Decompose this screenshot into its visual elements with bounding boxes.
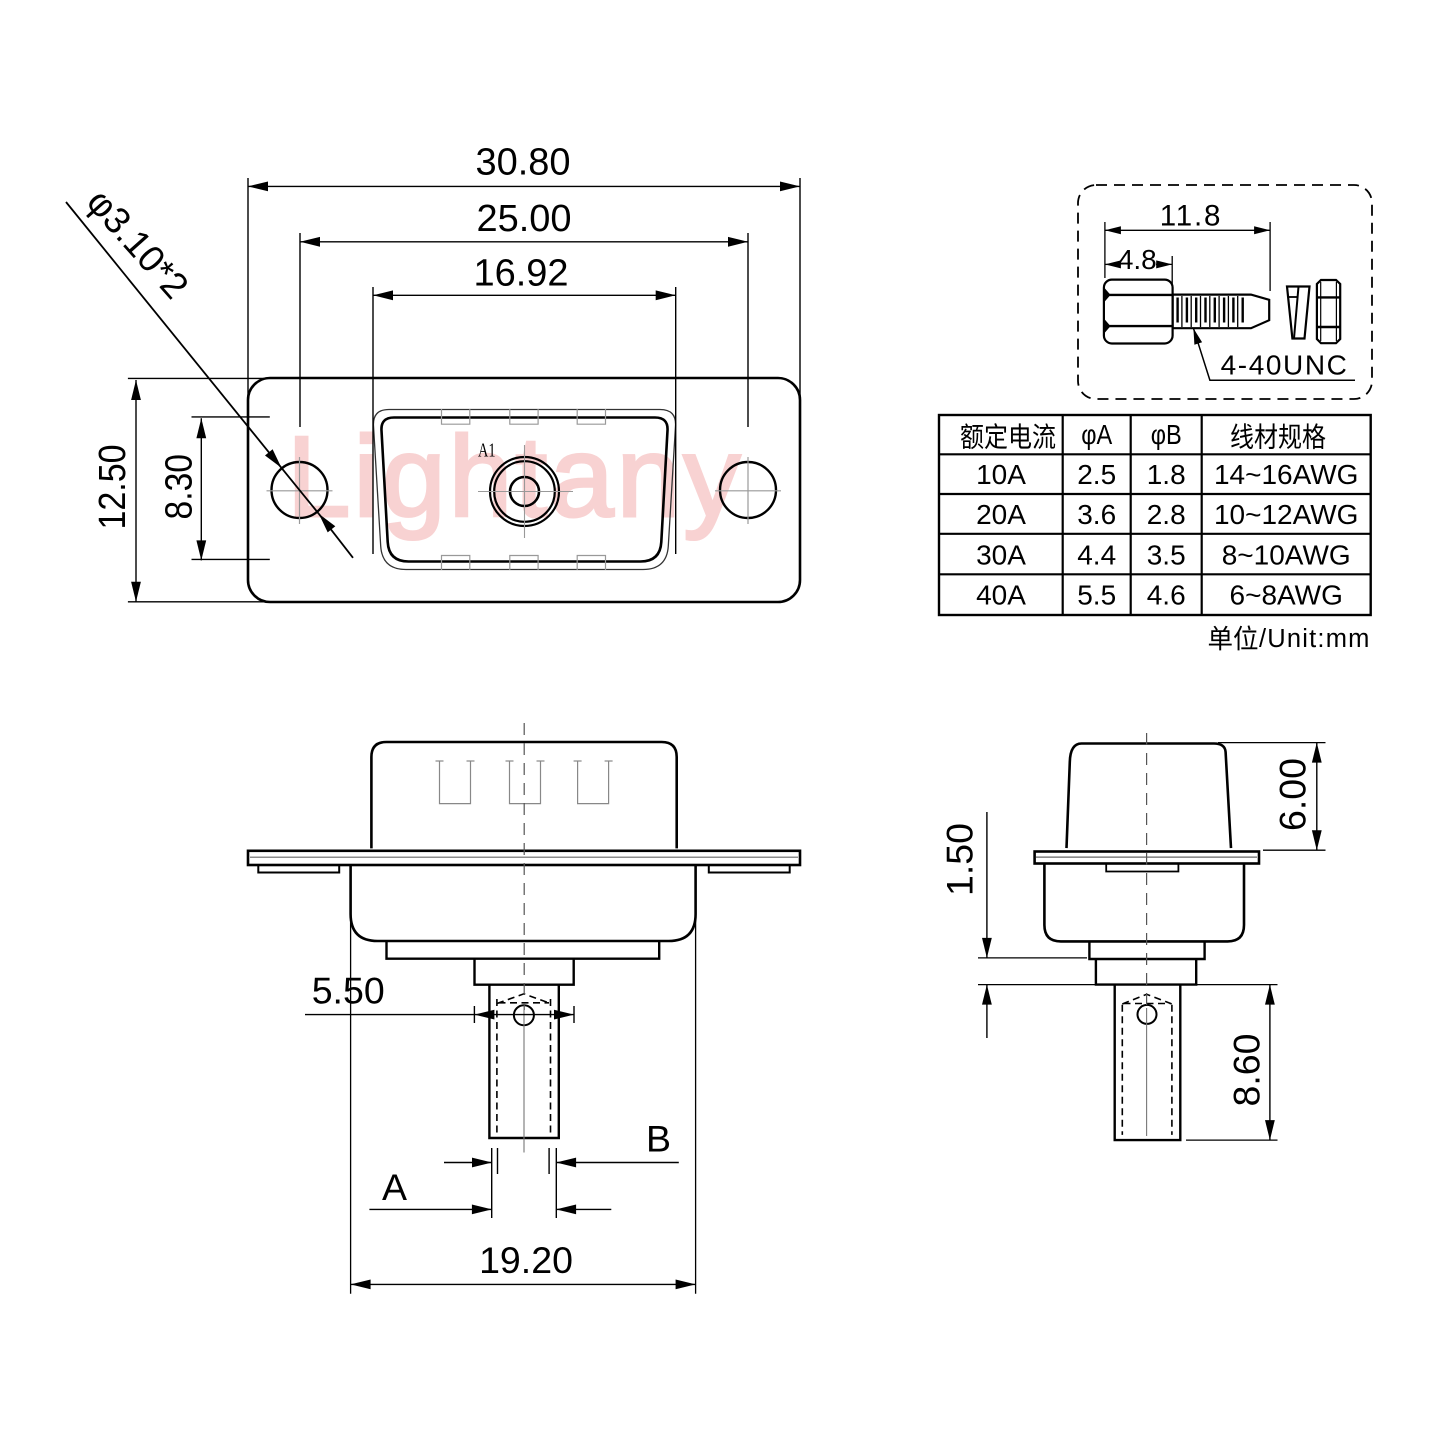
svg-text:12.50: 12.50: [92, 445, 134, 530]
svg-text:11.8: 11.8: [1160, 200, 1222, 233]
svg-text:5.50: 5.50: [312, 969, 385, 1011]
svg-text:2.5: 2.5: [1077, 459, 1116, 490]
svg-text:1.50: 1.50: [939, 823, 981, 896]
svg-text:6.00: 6.00: [1272, 758, 1314, 831]
svg-text:1.8: 1.8: [1147, 459, 1186, 490]
svg-text:/Unit:mm: /Unit:mm: [1259, 625, 1371, 653]
svg-text:40A: 40A: [976, 580, 1026, 611]
svg-text:8~10AWG: 8~10AWG: [1222, 539, 1351, 570]
svg-text:10~12AWG: 10~12AWG: [1214, 499, 1358, 530]
svg-text:25.00: 25.00: [476, 198, 571, 240]
svg-text:3.5: 3.5: [1147, 539, 1186, 570]
svg-text:16.92: 16.92: [473, 252, 568, 294]
svg-text:φA: φA: [1081, 419, 1112, 450]
svg-text:A: A: [382, 1166, 407, 1208]
svg-text:4.6: 4.6: [1147, 580, 1186, 611]
svg-text:8.30: 8.30: [159, 454, 201, 520]
svg-text:10A: 10A: [976, 459, 1026, 490]
svg-text:14~16AWG: 14~16AWG: [1214, 459, 1358, 490]
svg-text:φB: φB: [1151, 419, 1182, 450]
svg-text:3.6: 3.6: [1077, 499, 1116, 530]
svg-text:B: B: [646, 1117, 671, 1159]
svg-text:A1: A1: [478, 441, 496, 462]
svg-text:20A: 20A: [976, 499, 1026, 530]
svg-text:4.8: 4.8: [1118, 244, 1157, 275]
svg-text:30.80: 30.80: [475, 142, 570, 184]
svg-text:4.4: 4.4: [1077, 539, 1116, 570]
svg-text:4-40UNC: 4-40UNC: [1221, 349, 1349, 380]
svg-text:2.8: 2.8: [1147, 499, 1186, 530]
svg-text:8.60: 8.60: [1226, 1034, 1268, 1107]
svg-text:6~8AWG: 6~8AWG: [1230, 580, 1343, 611]
svg-text:5.5: 5.5: [1077, 580, 1116, 611]
svg-text:19.20: 19.20: [479, 1239, 573, 1281]
svg-text:30A: 30A: [976, 539, 1026, 570]
